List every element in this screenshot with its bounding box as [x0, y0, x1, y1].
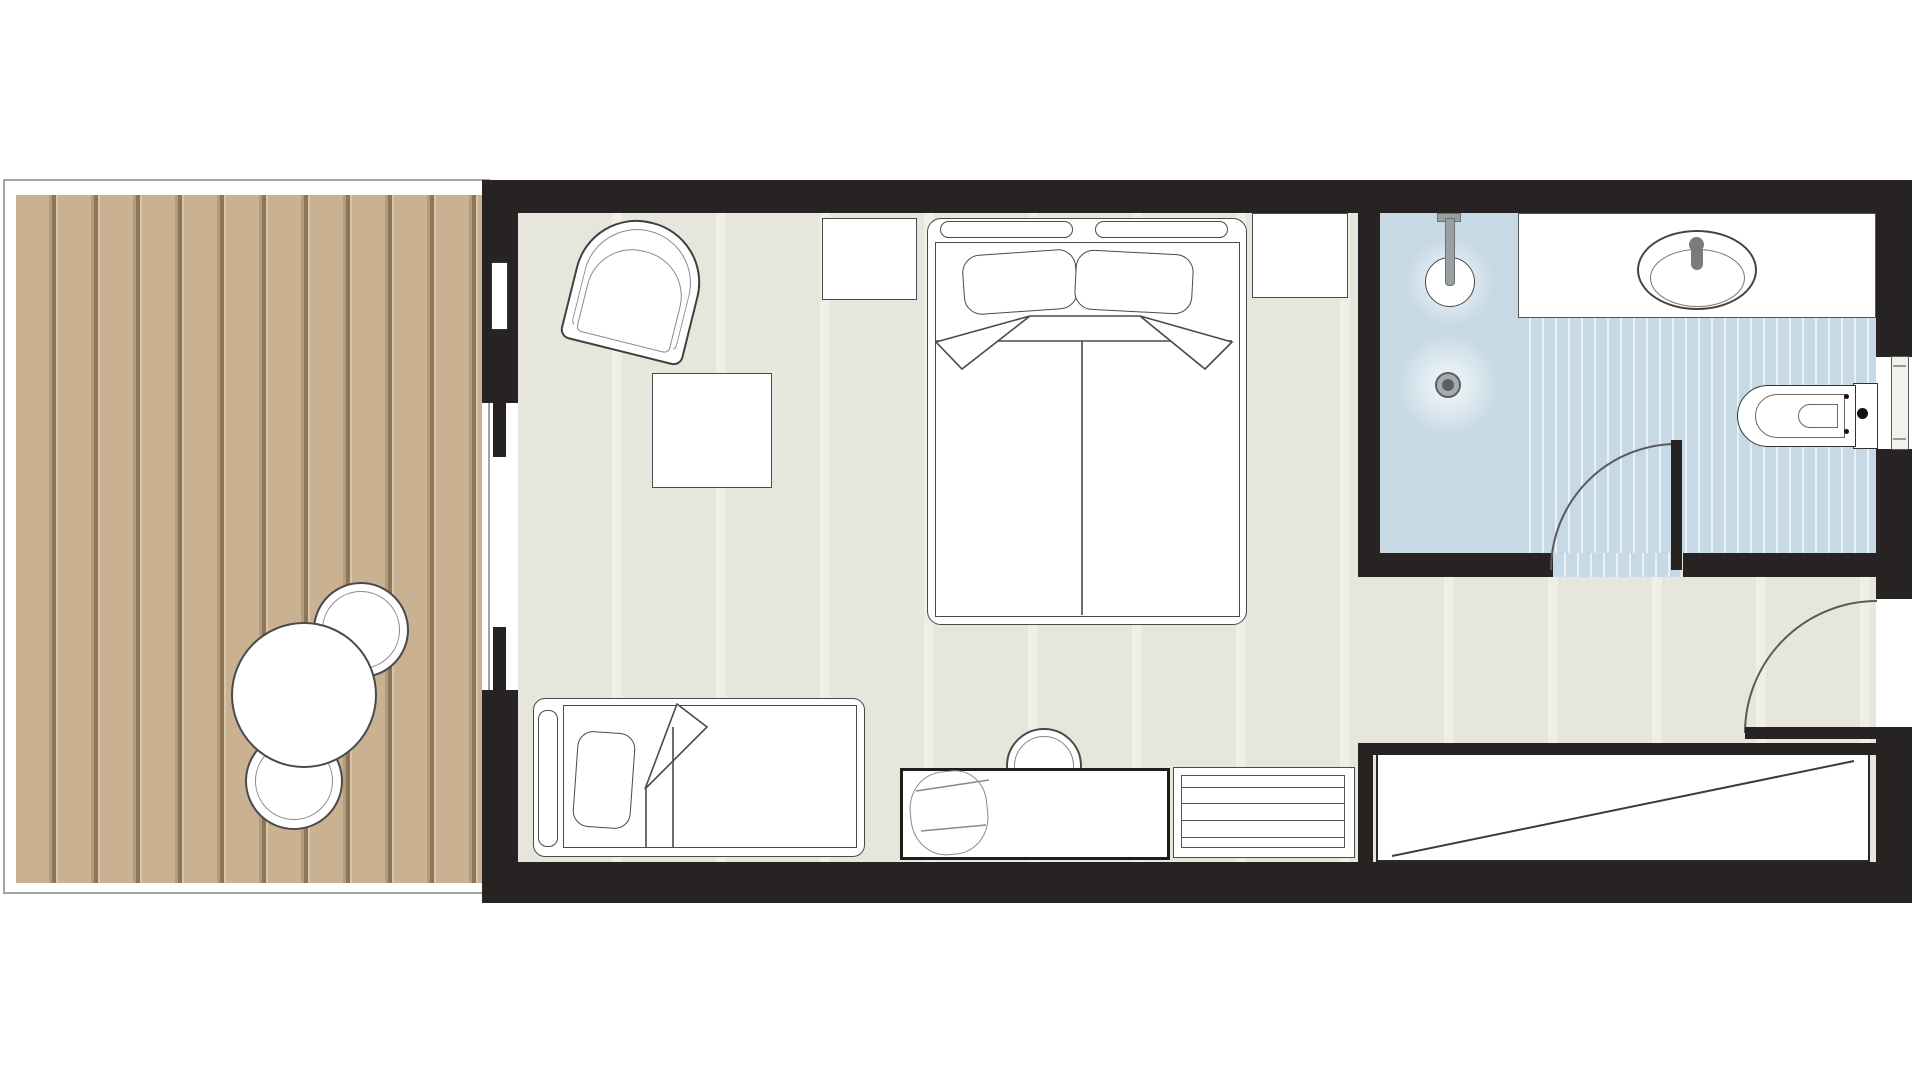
entrance-door-leaf [1745, 727, 1876, 739]
floor-drain-cap [1442, 379, 1454, 391]
wall-bathroom-bottom-left [1358, 553, 1553, 577]
pillow [961, 248, 1079, 316]
towel-rail-end [1893, 365, 1906, 367]
nightstand-right [1252, 213, 1348, 298]
wall-closet-stub [1358, 743, 1373, 862]
towel-rail [1891, 356, 1909, 450]
wall-right-upper [1876, 180, 1912, 357]
closet-front-wall [1373, 743, 1876, 755]
drawer-divider [1181, 820, 1345, 821]
toilet-hinge-dot [1844, 429, 1849, 434]
sliding-door-panel-upper [493, 330, 506, 457]
headboard-cushion [1095, 221, 1228, 238]
round-outdoor-table [231, 622, 377, 768]
floorplan-canvas [0, 0, 1920, 1080]
drawer-dresser [1173, 767, 1355, 858]
pillow [1074, 249, 1195, 315]
wall-bathroom-left [1358, 180, 1380, 577]
towel-rail-end [1893, 438, 1906, 440]
sliding-door-panel-lower [493, 627, 506, 772]
bolster-pillow [538, 710, 558, 847]
toilet-seat-inner [1798, 404, 1838, 428]
drawer-divider [1181, 837, 1345, 838]
toilet-hinge-dot [1844, 394, 1849, 399]
headboard-cushion [940, 221, 1073, 238]
flush-button [1857, 408, 1868, 419]
wall-right-middle [1876, 449, 1912, 599]
nightstand-left [822, 218, 917, 300]
ottoman-square [652, 373, 772, 488]
faucet-spout [1691, 248, 1703, 270]
wall-right-lower [1876, 727, 1912, 903]
daybed-pillow [572, 730, 637, 830]
drawer-divider [1181, 787, 1345, 788]
wall-bathroom-bottom-right [1683, 553, 1876, 577]
bathroom-doorway-floor [1553, 553, 1680, 577]
drawer-divider [1181, 803, 1345, 804]
floor-drain [1435, 372, 1461, 398]
sliding-door-glass-panel [491, 262, 508, 330]
wall-top [482, 180, 1883, 213]
wardrobe-closet [1376, 755, 1870, 862]
bathroom-door-leaf [1671, 440, 1682, 570]
shower-arm [1445, 218, 1455, 286]
wall-bottom [482, 862, 1912, 903]
